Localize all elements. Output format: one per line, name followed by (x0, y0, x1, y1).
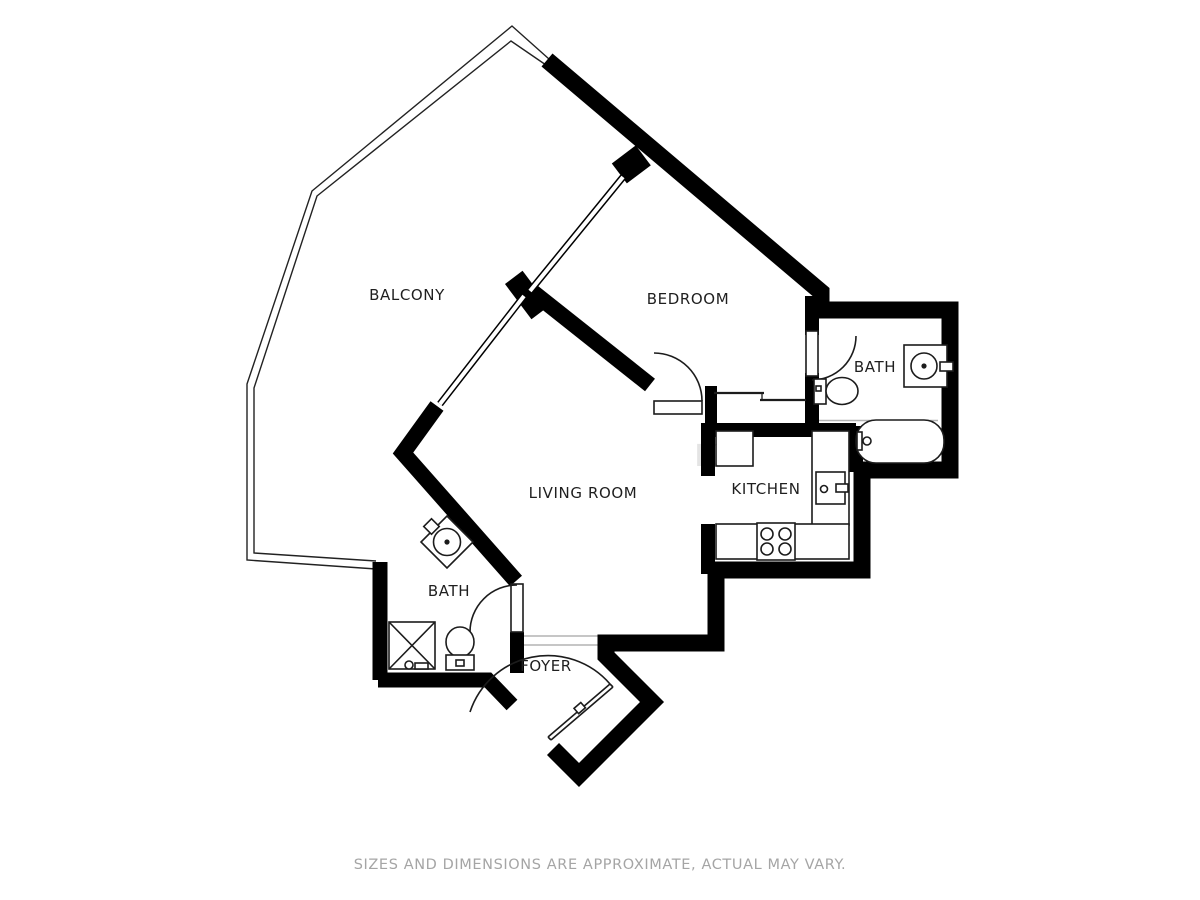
disclaimer-text: SIZES AND DIMENSIONS ARE APPROXIMATE, AC… (0, 857, 1200, 873)
bathroom-sink (904, 345, 953, 387)
room-label-living-room: LIVING ROOM (529, 484, 638, 502)
sliding-closet-doors (714, 393, 806, 400)
stove (757, 523, 795, 560)
room-label-foyer: FOYER (520, 657, 572, 675)
room-label-bedroom: BEDROOM (647, 290, 730, 308)
floor-plan-svg: K BALCONY BEDROOM BATH KITCHEN LIVING RO… (0, 0, 1200, 900)
toilet (814, 378, 858, 405)
bedroom-door (654, 353, 702, 414)
room-label-balcony: BALCONY (369, 286, 445, 304)
toilet (446, 627, 474, 670)
room-label-kitchen: KITCHEN (731, 480, 800, 498)
bath-right-door (806, 331, 856, 380)
refrigerator (716, 431, 753, 466)
bathtub (856, 420, 944, 463)
room-label-bath-lower: BATH (428, 582, 470, 600)
floor-plan: K BALCONY BEDROOM BATH KITCHEN LIVING RO… (0, 0, 1200, 900)
windows (440, 177, 623, 404)
room-label-bath-right: BATH (854, 358, 896, 376)
shower (389, 622, 435, 669)
bath-lower-door (470, 584, 523, 632)
kitchen-sink (816, 472, 848, 504)
watermark: K (694, 439, 719, 474)
